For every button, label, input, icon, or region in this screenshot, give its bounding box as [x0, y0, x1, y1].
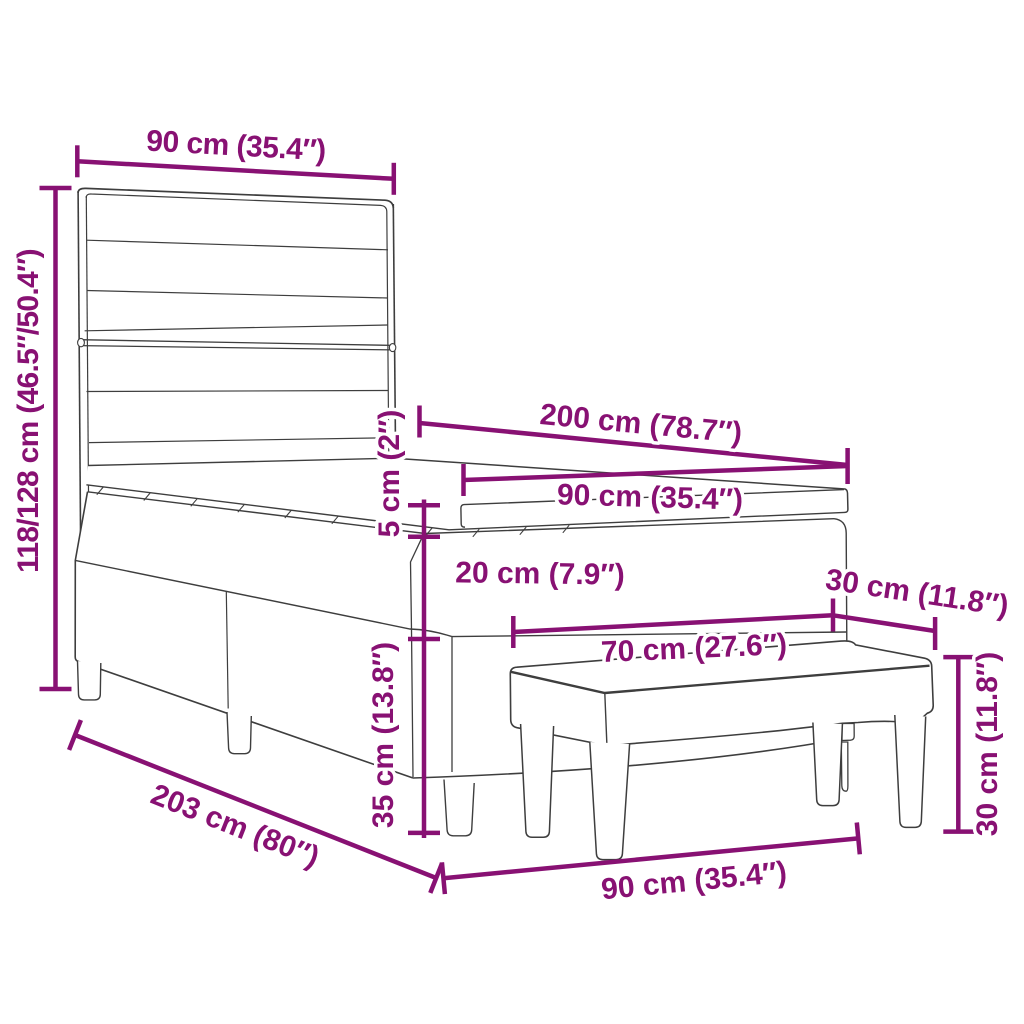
svg-text:35 cm (13.8″): 35 cm (13.8″): [367, 642, 400, 828]
svg-text:5 cm (2″): 5 cm (2″): [373, 410, 406, 538]
svg-text:118/128 cm (46.5″/50.4″): 118/128 cm (46.5″/50.4″): [12, 249, 45, 573]
svg-text:30 cm (11.8″): 30 cm (11.8″): [971, 652, 1004, 836]
svg-text:90 cm (35.4″): 90 cm (35.4″): [557, 478, 744, 516]
svg-text:20 cm (7.9″): 20 cm (7.9″): [455, 556, 625, 591]
